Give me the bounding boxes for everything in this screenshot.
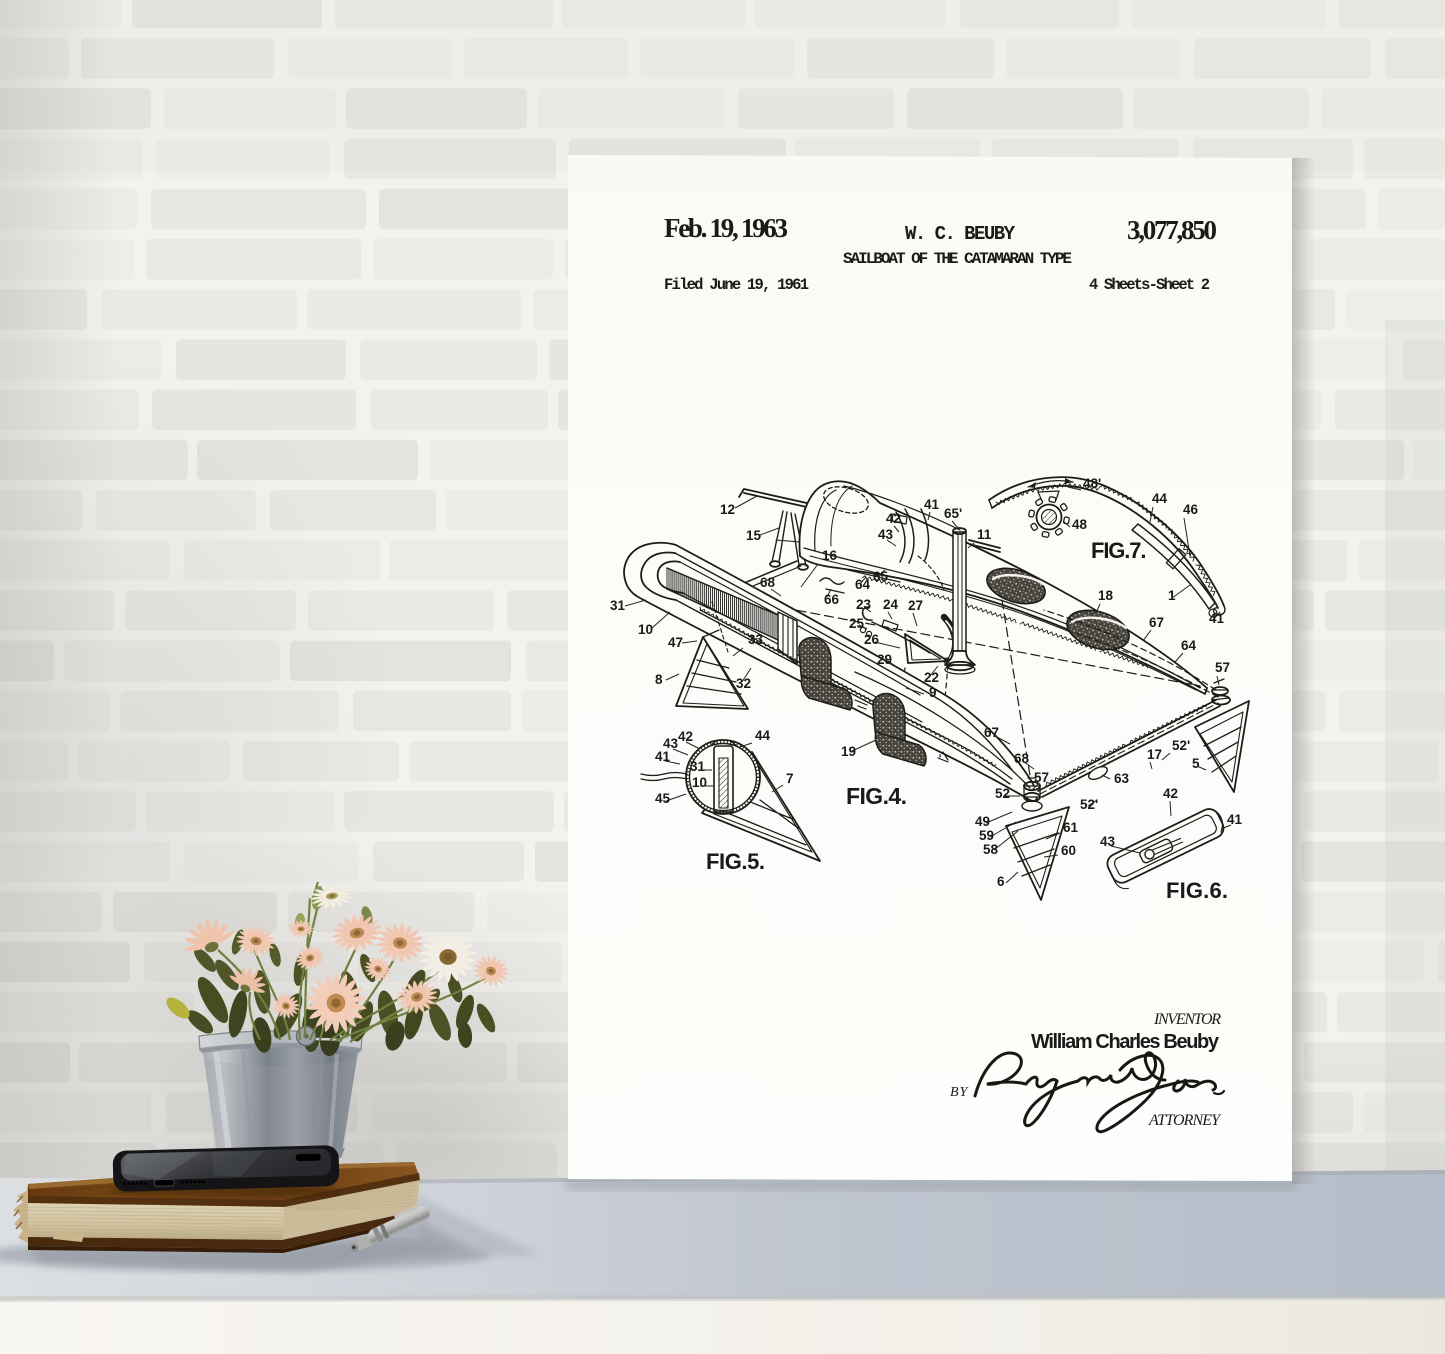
svg-text:45: 45 xyxy=(655,791,671,806)
svg-text:64: 64 xyxy=(1181,638,1197,653)
svg-text:BY: BY xyxy=(950,1085,970,1100)
svg-text:48': 48' xyxy=(1083,476,1101,491)
svg-text:64: 64 xyxy=(855,577,871,592)
svg-text:Filed June 19, 1961: Filed June 19, 1961 xyxy=(664,276,809,294)
svg-text:FIG.7.: FIG.7. xyxy=(1091,538,1147,563)
svg-text:24: 24 xyxy=(883,597,899,612)
svg-text:7: 7 xyxy=(786,771,794,786)
svg-text:41: 41 xyxy=(924,497,940,512)
svg-text:31: 31 xyxy=(690,759,706,774)
svg-text:10: 10 xyxy=(692,775,707,790)
svg-text:10: 10 xyxy=(638,622,653,637)
svg-text:68: 68 xyxy=(760,575,776,590)
svg-text:19: 19 xyxy=(841,744,856,759)
svg-text:48: 48 xyxy=(1072,517,1088,532)
svg-text:FIG.6.: FIG.6. xyxy=(1166,878,1230,903)
svg-text:22: 22 xyxy=(924,670,939,685)
svg-text:ATTORNEY: ATTORNEY xyxy=(1148,1112,1222,1129)
svg-text:23: 23 xyxy=(856,597,872,612)
svg-text:4 Sheets-Sheet 2: 4 Sheets-Sheet 2 xyxy=(1089,276,1210,294)
svg-text:41: 41 xyxy=(1209,611,1225,626)
svg-text:43: 43 xyxy=(878,527,894,542)
svg-text:12: 12 xyxy=(720,502,735,517)
svg-text:26: 26 xyxy=(864,632,880,647)
svg-text:32: 32 xyxy=(736,676,751,691)
svg-text:41: 41 xyxy=(1227,812,1243,827)
svg-text:33: 33 xyxy=(748,632,764,647)
svg-text:FIG.4.: FIG.4. xyxy=(846,783,908,809)
svg-text:44: 44 xyxy=(1152,491,1168,506)
svg-text:William Charles Beuby: William Charles Beuby xyxy=(1031,1031,1220,1053)
svg-text:29: 29 xyxy=(877,652,892,667)
svg-text:5: 5 xyxy=(1192,756,1200,771)
svg-text:31: 31 xyxy=(610,598,626,613)
svg-text:57: 57 xyxy=(1215,660,1230,675)
svg-text:Feb. 19, 1963: Feb. 19, 1963 xyxy=(664,213,788,243)
svg-text:11: 11 xyxy=(977,527,992,542)
svg-text:6: 6 xyxy=(997,874,1005,889)
svg-text:58: 58 xyxy=(983,842,999,857)
svg-text:65: 65 xyxy=(873,569,889,584)
svg-text:8: 8 xyxy=(655,672,663,687)
svg-text:57: 57 xyxy=(1034,770,1049,785)
svg-text:INVENTOR: INVENTOR xyxy=(1153,1011,1222,1028)
svg-text:17: 17 xyxy=(1147,747,1162,762)
svg-text:18: 18 xyxy=(1098,588,1114,603)
svg-text:42: 42 xyxy=(1163,786,1178,801)
svg-text:61: 61 xyxy=(1063,820,1079,835)
svg-text:16: 16 xyxy=(822,548,838,563)
svg-text:27: 27 xyxy=(908,598,923,613)
svg-text:15: 15 xyxy=(746,528,762,543)
svg-text:SAILBOAT OF THE CATAMARAN TYPE: SAILBOAT OF THE CATAMARAN TYPE xyxy=(843,250,1072,268)
svg-text:3,077,850: 3,077,850 xyxy=(1127,215,1217,245)
svg-text:52': 52' xyxy=(1172,738,1190,753)
svg-text:67: 67 xyxy=(1149,615,1164,630)
svg-text:42: 42 xyxy=(678,729,693,744)
svg-text:49: 49 xyxy=(975,814,990,829)
svg-text:66: 66 xyxy=(824,592,840,607)
svg-text:42: 42 xyxy=(886,511,901,526)
svg-text:63: 63 xyxy=(1114,771,1130,786)
svg-text:60: 60 xyxy=(1061,843,1076,858)
svg-text:46: 46 xyxy=(1183,502,1199,517)
svg-text:65': 65' xyxy=(944,506,962,521)
svg-text:FIG.5.: FIG.5. xyxy=(706,849,766,874)
svg-text:W. C. BEUBY: W. C. BEUBY xyxy=(905,223,1016,245)
svg-text:47: 47 xyxy=(668,635,683,650)
svg-text:67: 67 xyxy=(984,725,999,740)
svg-text:52': 52' xyxy=(1080,797,1098,812)
svg-text:9: 9 xyxy=(929,685,937,700)
svg-text:52: 52 xyxy=(995,786,1010,801)
svg-text:44: 44 xyxy=(755,728,771,743)
svg-text:25: 25 xyxy=(849,616,865,631)
